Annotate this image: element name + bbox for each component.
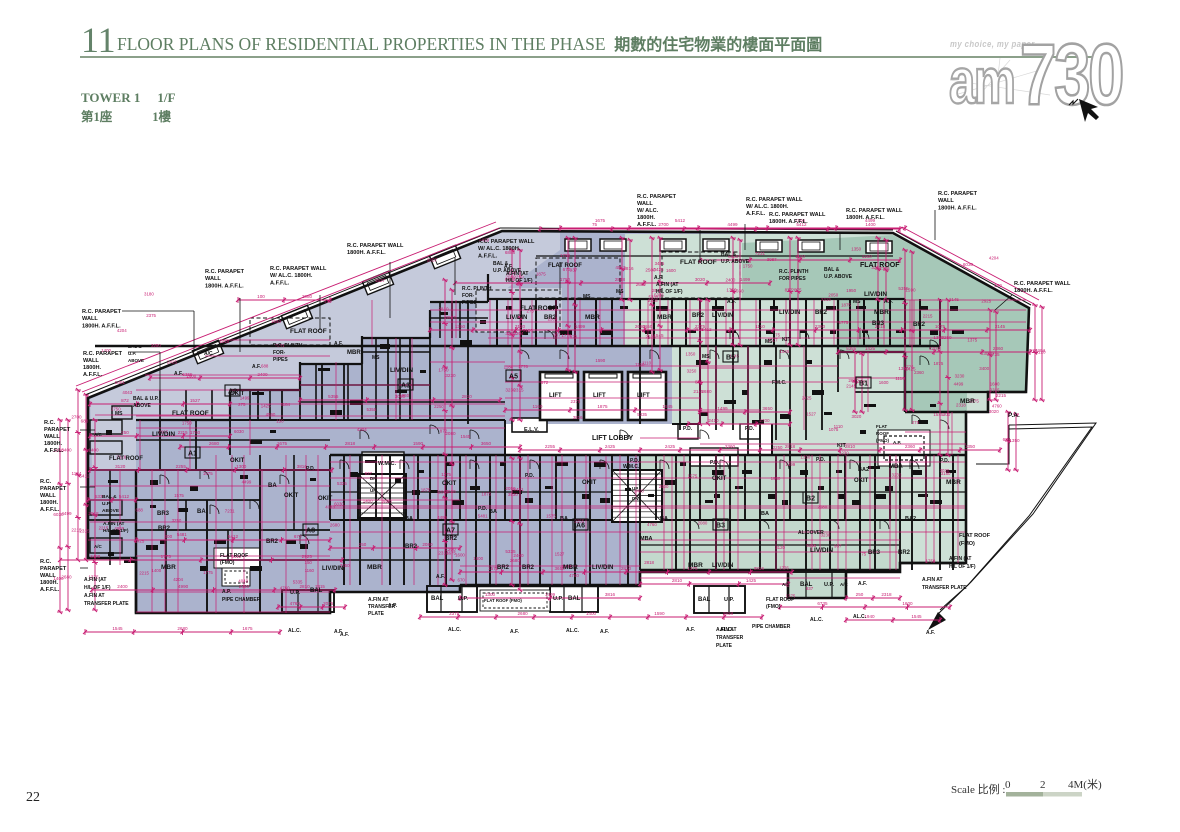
svg-text:1590: 1590 — [905, 288, 916, 293]
svg-text:3020: 3020 — [445, 489, 456, 494]
svg-text:3650: 3650 — [643, 324, 653, 329]
svg-text:R.C. PARAPET: R.C. PARAPET — [938, 191, 978, 197]
svg-text:1600: 1600 — [902, 601, 913, 606]
svg-text:AL.C.: AL.C. — [566, 628, 580, 634]
svg-text:BAL &: BAL & — [824, 267, 840, 273]
svg-text:2: 2 — [1040, 779, 1046, 791]
svg-text:LIV/DIN: LIV/DIN — [779, 310, 800, 316]
svg-text:0: 0 — [1005, 779, 1011, 791]
svg-text:FLAT ROOF: FLAT ROOF — [959, 533, 991, 539]
svg-text:MS: MS — [765, 339, 773, 345]
svg-text:2810: 2810 — [845, 444, 856, 449]
svg-text:A.F.F.L.: A.F.F.L. — [44, 448, 64, 454]
svg-text:1110: 1110 — [642, 361, 652, 366]
svg-text:1499: 1499 — [575, 324, 586, 329]
svg-text:PIPES: PIPES — [462, 300, 477, 306]
svg-text:4204: 4204 — [929, 346, 940, 351]
svg-text:E.L.V.: E.L.V. — [524, 427, 539, 433]
svg-text:P.D.: P.D. — [306, 466, 316, 472]
svg-text:3816: 3816 — [623, 266, 634, 271]
svg-text:2680: 2680 — [330, 523, 340, 528]
svg-text:1800H. A.F.F.L.: 1800H. A.F.F.L. — [347, 250, 386, 256]
svg-text:150: 150 — [324, 299, 332, 304]
svg-text:2255: 2255 — [545, 444, 556, 449]
svg-text:3120: 3120 — [775, 545, 785, 550]
svg-text:BAL &: BAL & — [128, 344, 142, 349]
svg-text:TRANSFER: TRANSFER — [716, 635, 744, 641]
svg-text:2080: 2080 — [302, 294, 313, 299]
svg-text:OKIT: OKIT — [284, 493, 299, 499]
svg-text:1300: 1300 — [485, 592, 496, 597]
svg-text:FLAT ROOF: FLAT ROOF — [220, 553, 248, 559]
svg-text:2400: 2400 — [117, 584, 128, 589]
svg-text:2425: 2425 — [135, 538, 145, 543]
svg-text:2375: 2375 — [146, 313, 156, 318]
svg-text:R.C. PLINTH: R.C. PLINTH — [462, 286, 492, 292]
svg-text:FLAT: FLAT — [876, 424, 887, 429]
svg-text:PLATE: PLATE — [716, 643, 733, 649]
svg-text:1776: 1776 — [779, 565, 789, 570]
svg-text:A.FIN (AT: A.FIN (AT — [84, 577, 106, 583]
svg-text:2500: 2500 — [659, 484, 669, 489]
svg-text:WALL: WALL — [637, 201, 653, 207]
svg-text:1875: 1875 — [536, 272, 546, 277]
svg-text:R.C. PLINTH: R.C. PLINTH — [779, 269, 809, 275]
svg-text:P.D.: P.D. — [683, 426, 693, 432]
svg-text:7106: 7106 — [523, 328, 533, 333]
svg-text:BR2: BR2 — [815, 310, 828, 316]
svg-text:W.M.C.: W.M.C. — [623, 464, 640, 470]
svg-text:B1: B1 — [859, 381, 868, 388]
svg-text:FOR-: FOR- — [462, 293, 475, 299]
svg-text:A.F.: A.F. — [727, 299, 737, 305]
svg-text:1590: 1590 — [413, 441, 424, 446]
svg-text:WALL: WALL — [44, 434, 60, 440]
svg-text:1800H. A.F.F.L.: 1800H. A.F.F.L. — [205, 283, 244, 289]
svg-text:OKIT: OKIT — [712, 476, 727, 482]
svg-text:2080: 2080 — [698, 520, 708, 525]
svg-text:1750: 1750 — [560, 253, 571, 258]
svg-text:4043: 4043 — [325, 505, 335, 510]
svg-text:A/C: A/C — [94, 432, 103, 437]
svg-text:3230: 3230 — [445, 373, 456, 378]
svg-text:1750: 1750 — [438, 368, 449, 373]
svg-text:1800H. A.F.F.L.: 1800H. A.F.F.L. — [82, 323, 121, 329]
svg-text:BAL &: BAL & — [102, 494, 117, 500]
svg-text:2425: 2425 — [665, 444, 676, 449]
svg-text:BR2: BR2 — [445, 536, 458, 542]
svg-text:A1: A1 — [188, 451, 197, 458]
svg-text:B2: B2 — [806, 496, 815, 503]
svg-text:3987: 3987 — [767, 257, 777, 262]
svg-text:P.D.: P.D. — [478, 506, 488, 512]
svg-text:1110: 1110 — [755, 324, 765, 329]
svg-text:MBR: MBR — [585, 314, 600, 321]
svg-text:A2: A2 — [228, 389, 237, 396]
svg-text:KIT: KIT — [837, 443, 847, 449]
svg-text:2810: 2810 — [299, 584, 310, 589]
svg-text:1425: 1425 — [746, 578, 757, 583]
svg-text:FLAT ROOF: FLAT ROOF — [172, 410, 209, 417]
svg-text:300: 300 — [943, 412, 951, 417]
svg-text:3816: 3816 — [573, 415, 583, 420]
svg-text:1350: 1350 — [851, 247, 861, 252]
svg-text:1590: 1590 — [595, 358, 605, 363]
svg-text:UP: UP — [632, 486, 638, 491]
svg-text:5355: 5355 — [328, 394, 339, 399]
svg-text:AL.C.: AL.C. — [288, 628, 302, 634]
svg-text:1527: 1527 — [190, 398, 201, 403]
svg-text:MBR: MBR — [874, 309, 889, 316]
svg-text:P.D.: P.D. — [940, 458, 950, 464]
svg-text:3230: 3230 — [505, 388, 516, 393]
svg-text:1750: 1750 — [182, 421, 192, 426]
svg-text:PIPE CHAMBER: PIPE CHAMBER — [222, 597, 261, 603]
svg-text:3020: 3020 — [940, 468, 950, 473]
svg-text:2360: 2360 — [239, 584, 250, 589]
svg-text:2810: 2810 — [438, 307, 449, 312]
svg-text:LIFT: LIFT — [637, 393, 650, 399]
svg-text:2818: 2818 — [88, 511, 99, 516]
svg-text:1075: 1075 — [203, 471, 213, 476]
svg-text:LIFT: LIFT — [593, 393, 606, 399]
svg-text:1600: 1600 — [879, 380, 889, 385]
svg-text:100: 100 — [257, 294, 265, 299]
svg-text:1800H. A.F.F.L.: 1800H. A.F.F.L. — [846, 215, 885, 221]
svg-text:1950: 1950 — [399, 393, 409, 398]
svg-text:7231: 7231 — [225, 508, 235, 513]
svg-text:A.F.: A.F. — [504, 264, 514, 270]
svg-text:FLAT ROOF: FLAT ROOF — [520, 305, 557, 312]
svg-text:U.P. ABOVE: U.P. ABOVE — [721, 259, 750, 265]
svg-text:WALL: WALL — [205, 276, 221, 282]
svg-text:1300: 1300 — [236, 464, 247, 469]
svg-text:BA2: BA2 — [905, 516, 916, 522]
svg-text:A.F.: A.F. — [654, 275, 664, 281]
svg-text:U.P.: U.P. — [458, 596, 468, 602]
svg-text:BA: BA — [660, 516, 668, 522]
svg-text:1400: 1400 — [88, 448, 99, 453]
svg-text:2255: 2255 — [176, 464, 187, 469]
svg-text:2425: 2425 — [802, 396, 812, 401]
svg-text:A.P.: A.P. — [222, 589, 232, 595]
svg-text:OKIT: OKIT — [318, 496, 333, 502]
svg-text:1110: 1110 — [795, 254, 805, 259]
svg-text:ABOVE: ABOVE — [128, 358, 144, 363]
svg-text:FLAT ROOF: FLAT ROOF — [290, 328, 327, 335]
svg-text:1875: 1875 — [934, 361, 944, 366]
svg-text:P.A.: P.A. — [1008, 412, 1020, 419]
svg-text:W/ ALC.: W/ ALC. — [637, 208, 659, 214]
svg-text:4204: 4204 — [357, 427, 367, 432]
svg-text:937: 937 — [834, 543, 842, 548]
svg-text:4990: 4990 — [266, 412, 276, 417]
svg-text:1800H.: 1800H. — [637, 215, 655, 221]
svg-text:PARAPET: PARAPET — [40, 486, 67, 492]
svg-text:B5: B5 — [726, 355, 735, 362]
svg-text:2925: 2925 — [302, 554, 313, 559]
svg-text:MS: MS — [372, 355, 380, 361]
svg-text:1775: 1775 — [839, 320, 849, 325]
svg-text:3816: 3816 — [754, 566, 765, 571]
svg-text:WALL: WALL — [40, 573, 56, 579]
svg-text:PIPE CHAMBER: PIPE CHAMBER — [752, 624, 791, 630]
svg-text:P.D.: P.D. — [745, 426, 755, 432]
svg-text:5335: 5335 — [337, 481, 347, 486]
svg-text:4204: 4204 — [1035, 348, 1046, 353]
svg-text:W/ AL.C. 1800H.: W/ AL.C. 1800H. — [270, 273, 313, 279]
svg-text:A.F.: A.F. — [340, 632, 350, 638]
svg-text:U.P.: U.P. — [128, 351, 136, 356]
svg-text:1875: 1875 — [481, 491, 491, 496]
svg-text:2215: 2215 — [178, 430, 188, 435]
svg-text:H/L OF 1/F): H/L OF 1/F) — [656, 289, 683, 295]
svg-text:A.F.: A.F. — [334, 341, 344, 347]
svg-text:3230: 3230 — [505, 331, 516, 336]
svg-text:R.C. PARAPET WALL: R.C. PARAPET WALL — [478, 239, 535, 245]
svg-text:2375: 2375 — [449, 611, 460, 616]
svg-text:BA: BA — [489, 509, 497, 515]
svg-text:3250: 3250 — [687, 369, 697, 374]
svg-text:U.P.: U.P. — [102, 501, 111, 507]
svg-text:4M(米): 4M(米) — [1068, 778, 1102, 791]
svg-text:MBA: MBA — [889, 464, 903, 470]
svg-text:2075: 2075 — [791, 288, 802, 293]
svg-text:1527: 1527 — [806, 411, 816, 416]
svg-text:2360: 2360 — [725, 444, 736, 449]
svg-text:H/L OF 1/F): H/L OF 1/F) — [84, 585, 111, 591]
svg-text:1160: 1160 — [305, 568, 315, 573]
svg-text:MS: MS — [616, 289, 624, 295]
svg-text:U.P.: U.P. — [553, 596, 563, 602]
svg-text:LIV/DIN: LIV/DIN — [712, 313, 733, 319]
svg-text:R.C. PLINTH: R.C. PLINTH — [273, 343, 303, 349]
svg-text:3650: 3650 — [762, 406, 773, 411]
svg-text:1950: 1950 — [846, 288, 856, 293]
svg-text:OKIT: OKIT — [230, 458, 245, 464]
svg-text:BAL: BAL — [800, 582, 813, 588]
svg-text:2145: 2145 — [949, 297, 959, 302]
svg-text:DN: DN — [632, 496, 639, 501]
svg-text:A.FIN AT: A.FIN AT — [84, 593, 105, 599]
svg-text:LIFT LOBBY: LIFT LOBBY — [592, 435, 634, 442]
svg-text:R.C. PARAPET: R.C. PARAPET — [205, 269, 245, 275]
svg-text:4043: 4043 — [122, 390, 132, 395]
svg-text:2315: 2315 — [79, 529, 90, 534]
svg-text:A.FIN AT: A.FIN AT — [922, 577, 943, 583]
svg-text:2360: 2360 — [993, 346, 1004, 351]
svg-text:688: 688 — [81, 419, 89, 424]
svg-text:4990: 4990 — [178, 584, 189, 589]
svg-text:2925: 2925 — [981, 298, 991, 303]
svg-text:2657: 2657 — [427, 258, 438, 263]
svg-text:1675: 1675 — [277, 441, 288, 446]
svg-text:A.FIN (AT: A.FIN (AT — [103, 521, 125, 527]
svg-text:W/ AL.C. 1800H.: W/ AL.C. 1800H. — [746, 204, 789, 210]
svg-text:FLAT ROOF: FLAT ROOF — [109, 456, 143, 462]
svg-text:2315: 2315 — [990, 387, 1000, 392]
svg-text:PARAPET: PARAPET — [40, 566, 67, 572]
svg-text:2050: 2050 — [828, 292, 838, 297]
svg-text:1350: 1350 — [801, 455, 811, 460]
svg-text:2680: 2680 — [517, 611, 528, 616]
svg-text:250: 250 — [121, 430, 129, 435]
svg-text:FOR-: FOR- — [273, 350, 286, 356]
svg-text:A.F.F.L.: A.F.F.L. — [478, 253, 498, 259]
svg-text:5412: 5412 — [79, 474, 90, 479]
svg-text:1400: 1400 — [363, 499, 373, 504]
svg-text:R.C. PARAPET: R.C. PARAPET — [83, 351, 123, 357]
svg-text:R.C.: R.C. — [44, 420, 56, 426]
svg-text:BAL & U.P.: BAL & U.P. — [133, 396, 159, 402]
svg-text:A7: A7 — [446, 528, 455, 535]
svg-text:300: 300 — [164, 534, 172, 539]
svg-text:2250: 2250 — [773, 445, 783, 450]
svg-text:1350: 1350 — [686, 351, 696, 356]
svg-text:2410: 2410 — [708, 418, 719, 423]
svg-text:AL.C.: AL.C. — [720, 627, 734, 633]
svg-text:4499: 4499 — [242, 480, 252, 485]
svg-text:2818: 2818 — [615, 277, 626, 282]
svg-text:A.F.: A.F. — [510, 629, 520, 635]
svg-text:1600: 1600 — [455, 553, 465, 558]
svg-text:2080: 2080 — [817, 505, 827, 510]
svg-text:872: 872 — [570, 335, 578, 340]
svg-text:U.P. ABOVE: U.P. ABOVE — [824, 274, 853, 280]
svg-text:150: 150 — [276, 419, 284, 424]
svg-text:MBA: MBA — [640, 536, 653, 542]
svg-text:2680: 2680 — [177, 626, 188, 631]
svg-text:2215: 2215 — [821, 297, 831, 302]
svg-text:4204: 4204 — [173, 577, 183, 582]
svg-text:2145: 2145 — [846, 384, 856, 389]
svg-text:250: 250 — [856, 592, 864, 597]
svg-text:LIV/DIN: LIV/DIN — [712, 563, 733, 569]
svg-text:2400: 2400 — [726, 277, 736, 282]
svg-text:3230: 3230 — [892, 473, 902, 478]
svg-text:A.F.F.L.: A.F.F.L. — [637, 222, 657, 228]
svg-text:H/L OF 1/F): H/L OF 1/F) — [506, 278, 533, 284]
svg-text:3530: 3530 — [508, 492, 518, 497]
svg-text:R.C.: R.C. — [40, 479, 52, 485]
svg-text:872: 872 — [541, 380, 549, 385]
svg-text:BA: BA — [268, 483, 277, 489]
svg-text:1800H. A.F.F.L.: 1800H. A.F.F.L. — [769, 219, 808, 225]
svg-text:A.FIN AT: A.FIN AT — [368, 597, 389, 603]
svg-text:872: 872 — [695, 379, 703, 384]
svg-text:2925: 2925 — [645, 335, 656, 340]
svg-text:1600: 1600 — [990, 381, 1000, 386]
svg-text:1527: 1527 — [375, 278, 386, 283]
svg-text:FLAT ROOF: FLAT ROOF — [680, 259, 717, 266]
svg-text:R.C. PARAPET: R.C. PARAPET — [82, 309, 122, 315]
svg-text:1776: 1776 — [518, 364, 528, 369]
svg-text:2360: 2360 — [914, 370, 924, 375]
svg-text:6735: 6735 — [989, 352, 1000, 357]
svg-text:1350: 1350 — [965, 444, 976, 449]
svg-text:A8: A8 — [306, 528, 315, 535]
svg-text:1875: 1875 — [421, 488, 431, 493]
svg-text:A.F.: A.F. — [686, 627, 696, 633]
svg-text:5412: 5412 — [228, 534, 239, 539]
svg-text:MBR: MBR — [960, 398, 975, 405]
svg-text:KIT: KIT — [782, 337, 792, 343]
svg-text:3020: 3020 — [852, 414, 862, 419]
svg-text:6735: 6735 — [817, 601, 828, 606]
svg-text:2810: 2810 — [672, 578, 683, 583]
svg-text:B3: B3 — [716, 523, 725, 530]
svg-text:250: 250 — [359, 542, 367, 547]
svg-text:1160: 1160 — [533, 404, 543, 409]
svg-text:PIPES: PIPES — [273, 357, 288, 363]
svg-text:ABOVE: ABOVE — [102, 508, 120, 514]
svg-text:1184: 1184 — [281, 402, 291, 407]
svg-text:4499: 4499 — [437, 515, 447, 520]
svg-text:U.P.: U.P. — [724, 597, 734, 603]
svg-text:1750: 1750 — [190, 430, 201, 435]
svg-text:3020: 3020 — [989, 409, 999, 414]
svg-text:2075: 2075 — [323, 601, 334, 606]
svg-text:BA: BA — [197, 509, 206, 515]
svg-text:1499: 1499 — [717, 406, 728, 411]
svg-text:150: 150 — [305, 560, 313, 565]
svg-text:AL.C.: AL.C. — [448, 627, 462, 633]
svg-text:2818: 2818 — [345, 441, 356, 446]
svg-text:2375: 2375 — [571, 399, 581, 404]
svg-text:R.C. PARAPET WALL: R.C. PARAPET WALL — [347, 243, 404, 249]
svg-text:2145: 2145 — [995, 324, 1006, 329]
svg-text:2680: 2680 — [61, 574, 72, 579]
svg-text:A/C: A/C — [840, 582, 849, 587]
svg-text:3400: 3400 — [979, 366, 989, 371]
svg-text:1800H. A.F.F.L.: 1800H. A.F.F.L. — [938, 205, 977, 211]
svg-text:(FMO): (FMO) — [876, 438, 889, 443]
svg-text:4499: 4499 — [954, 381, 964, 386]
svg-text:4204: 4204 — [989, 256, 999, 261]
svg-text:BA: BA — [405, 516, 413, 522]
svg-text:1590: 1590 — [654, 611, 665, 616]
svg-text:A6: A6 — [576, 523, 585, 530]
svg-text:BR3: BR3 — [872, 321, 885, 327]
svg-text:5412: 5412 — [701, 327, 712, 332]
svg-text:BR2: BR2 — [497, 565, 510, 571]
svg-text:A3: A3 — [401, 383, 410, 390]
svg-text:LIV/DIN: LIV/DIN — [390, 367, 413, 374]
svg-text:2425: 2425 — [605, 444, 616, 449]
svg-text:4760: 4760 — [647, 522, 657, 527]
svg-text:WALL: WALL — [938, 198, 954, 204]
svg-text:1800H. A.F.F.L.: 1800H. A.F.F.L. — [1014, 288, 1053, 294]
svg-text:BR2: BR2 — [266, 539, 279, 545]
svg-text:2500: 2500 — [645, 268, 656, 273]
svg-text:1527: 1527 — [555, 552, 565, 557]
svg-text:R.C.: R.C. — [40, 559, 52, 565]
svg-text:1110: 1110 — [834, 424, 844, 429]
svg-text:2250: 2250 — [434, 404, 444, 409]
svg-text:2360: 2360 — [905, 444, 916, 449]
svg-text:A.F.F.L.: A.F.F.L. — [746, 211, 766, 217]
svg-text:1875: 1875 — [841, 303, 851, 308]
svg-text:LIV/DIN: LIV/DIN — [322, 566, 343, 572]
svg-text:MBR: MBR — [161, 564, 176, 571]
svg-text:3120: 3120 — [115, 464, 126, 469]
svg-text:BA2: BA2 — [858, 467, 869, 473]
svg-text:U.P.: U.P. — [290, 590, 300, 596]
svg-text:(FMO): (FMO) — [959, 541, 975, 547]
svg-text:A5: A5 — [509, 374, 518, 381]
svg-text:1400: 1400 — [586, 611, 597, 616]
svg-text:H/L OF 1/F): H/L OF 1/F) — [949, 564, 976, 570]
